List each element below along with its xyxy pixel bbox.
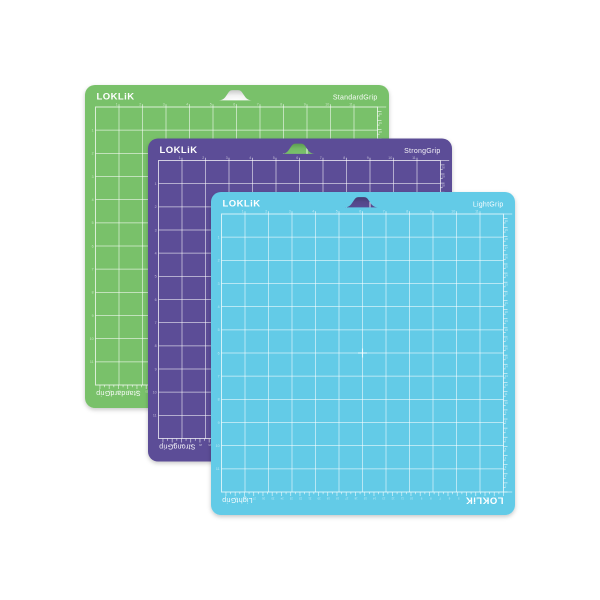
svg-text:13: 13: [382, 497, 386, 501]
svg-text:22: 22: [299, 497, 303, 501]
svg-text:24: 24: [505, 274, 509, 278]
svg-text:6: 6: [92, 244, 94, 248]
svg-text:LOKLiK: LOKLiK: [97, 91, 135, 102]
svg-text:StrongGrip: StrongGrip: [159, 443, 195, 450]
svg-text:2: 2: [265, 209, 267, 213]
svg-text:29: 29: [379, 121, 383, 125]
svg-text:19: 19: [505, 319, 509, 323]
svg-text:8: 8: [155, 344, 157, 348]
svg-text:14: 14: [505, 365, 509, 369]
svg-text:StandardGrip: StandardGrip: [96, 389, 141, 396]
svg-text:10: 10: [216, 444, 220, 448]
svg-text:LightGrip: LightGrip: [222, 496, 253, 503]
svg-text:9: 9: [304, 102, 306, 106]
svg-text:18: 18: [505, 328, 509, 332]
svg-text:20: 20: [317, 497, 321, 501]
svg-text:9: 9: [430, 209, 432, 213]
svg-text:6: 6: [218, 351, 220, 355]
svg-text:25: 25: [271, 497, 275, 501]
svg-text:21: 21: [308, 497, 312, 501]
svg-text:4: 4: [155, 252, 157, 256]
svg-text:8: 8: [343, 156, 345, 160]
svg-text:20: 20: [505, 310, 509, 314]
svg-text:17: 17: [505, 337, 509, 341]
svg-text:7: 7: [218, 375, 220, 379]
svg-text:28: 28: [442, 184, 446, 188]
svg-text:25: 25: [208, 443, 212, 447]
svg-text:3: 3: [155, 228, 157, 232]
svg-text:5: 5: [218, 328, 220, 332]
svg-text:11: 11: [349, 102, 353, 106]
svg-text:18: 18: [336, 497, 340, 501]
svg-text:5: 5: [155, 275, 157, 279]
svg-text:1: 1: [179, 156, 181, 160]
svg-text:5: 5: [210, 102, 212, 106]
svg-text:3: 3: [289, 209, 291, 213]
svg-text:10: 10: [388, 156, 392, 160]
svg-text:25: 25: [145, 390, 149, 394]
svg-text:10: 10: [410, 497, 414, 501]
svg-text:30: 30: [505, 219, 509, 223]
svg-text:10: 10: [325, 102, 329, 106]
svg-text:4: 4: [312, 209, 314, 213]
svg-text:2: 2: [155, 205, 157, 209]
svg-text:7: 7: [92, 268, 94, 272]
svg-text:11: 11: [90, 360, 94, 364]
svg-text:25: 25: [505, 264, 509, 268]
svg-text:15: 15: [505, 356, 509, 360]
svg-text:24: 24: [280, 497, 284, 501]
svg-text:11: 11: [412, 156, 416, 160]
svg-text:26: 26: [199, 443, 203, 447]
svg-text:1: 1: [116, 102, 118, 106]
svg-text:30: 30: [442, 165, 446, 169]
svg-text:23: 23: [505, 283, 509, 287]
svg-text:1: 1: [155, 182, 157, 186]
svg-text:13: 13: [505, 374, 509, 378]
svg-text:21: 21: [505, 301, 509, 305]
svg-text:29: 29: [442, 174, 446, 178]
svg-text:11: 11: [475, 209, 479, 213]
svg-text:7: 7: [383, 209, 385, 213]
svg-text:LOKLiK: LOKLiK: [465, 495, 503, 506]
svg-text:12: 12: [391, 497, 395, 501]
svg-text:5: 5: [92, 221, 94, 225]
svg-text:5: 5: [273, 156, 275, 160]
svg-text:LightGrip: LightGrip: [473, 202, 504, 209]
svg-text:7: 7: [257, 102, 259, 106]
svg-text:11: 11: [153, 414, 157, 418]
svg-text:2: 2: [202, 156, 204, 160]
svg-text:14: 14: [373, 497, 377, 501]
svg-text:3: 3: [226, 156, 228, 160]
svg-text:LOKLiK: LOKLiK: [223, 198, 261, 209]
svg-text:8: 8: [218, 398, 220, 402]
svg-text:17: 17: [345, 497, 349, 501]
svg-text:7: 7: [155, 321, 157, 325]
svg-text:23: 23: [289, 497, 293, 501]
svg-text:6: 6: [359, 209, 361, 213]
svg-text:12: 12: [505, 383, 509, 387]
svg-text:9: 9: [92, 314, 94, 318]
svg-text:27: 27: [505, 246, 509, 250]
svg-text:8: 8: [406, 209, 408, 213]
svg-text:1: 1: [218, 236, 220, 240]
svg-text:22: 22: [505, 292, 509, 296]
svg-text:8: 8: [280, 102, 282, 106]
svg-text:4: 4: [186, 102, 188, 106]
svg-text:LOKLiK: LOKLiK: [160, 145, 198, 156]
svg-text:6: 6: [233, 102, 235, 106]
svg-text:2: 2: [139, 102, 141, 106]
svg-text:7: 7: [320, 156, 322, 160]
svg-text:28: 28: [379, 130, 383, 134]
svg-text:9: 9: [367, 156, 369, 160]
svg-text:1: 1: [92, 129, 94, 133]
svg-text:9: 9: [218, 421, 220, 425]
svg-text:11: 11: [216, 467, 220, 471]
svg-text:3: 3: [163, 102, 165, 106]
svg-text:8: 8: [92, 291, 94, 295]
svg-text:19: 19: [326, 497, 330, 501]
svg-text:10: 10: [505, 401, 509, 405]
svg-text:29: 29: [505, 228, 509, 232]
svg-text:2: 2: [92, 152, 94, 156]
svg-text:4: 4: [92, 198, 94, 202]
svg-text:16: 16: [354, 497, 358, 501]
svg-text:2: 2: [218, 259, 220, 263]
svg-text:9: 9: [155, 367, 157, 371]
svg-text:10: 10: [90, 337, 94, 341]
svg-text:30: 30: [379, 112, 383, 116]
svg-text:26: 26: [505, 255, 509, 259]
svg-text:1: 1: [242, 209, 244, 213]
svg-text:15: 15: [363, 497, 367, 501]
svg-text:6: 6: [296, 156, 298, 160]
svg-text:3: 3: [92, 175, 94, 179]
svg-text:28: 28: [505, 237, 509, 241]
svg-text:StrongGrip: StrongGrip: [404, 148, 440, 155]
svg-text:16: 16: [505, 346, 509, 350]
svg-text:10: 10: [153, 391, 157, 395]
svg-text:4: 4: [249, 156, 251, 160]
svg-text:11: 11: [401, 497, 404, 501]
svg-text:11: 11: [505, 392, 508, 396]
svg-text:5: 5: [336, 209, 338, 213]
svg-text:StandardGrip: StandardGrip: [333, 95, 378, 102]
svg-text:4: 4: [218, 305, 220, 309]
svg-text:10: 10: [451, 209, 455, 213]
svg-text:6: 6: [155, 298, 157, 302]
svg-text:3: 3: [218, 282, 220, 286]
svg-text:26: 26: [262, 497, 266, 501]
